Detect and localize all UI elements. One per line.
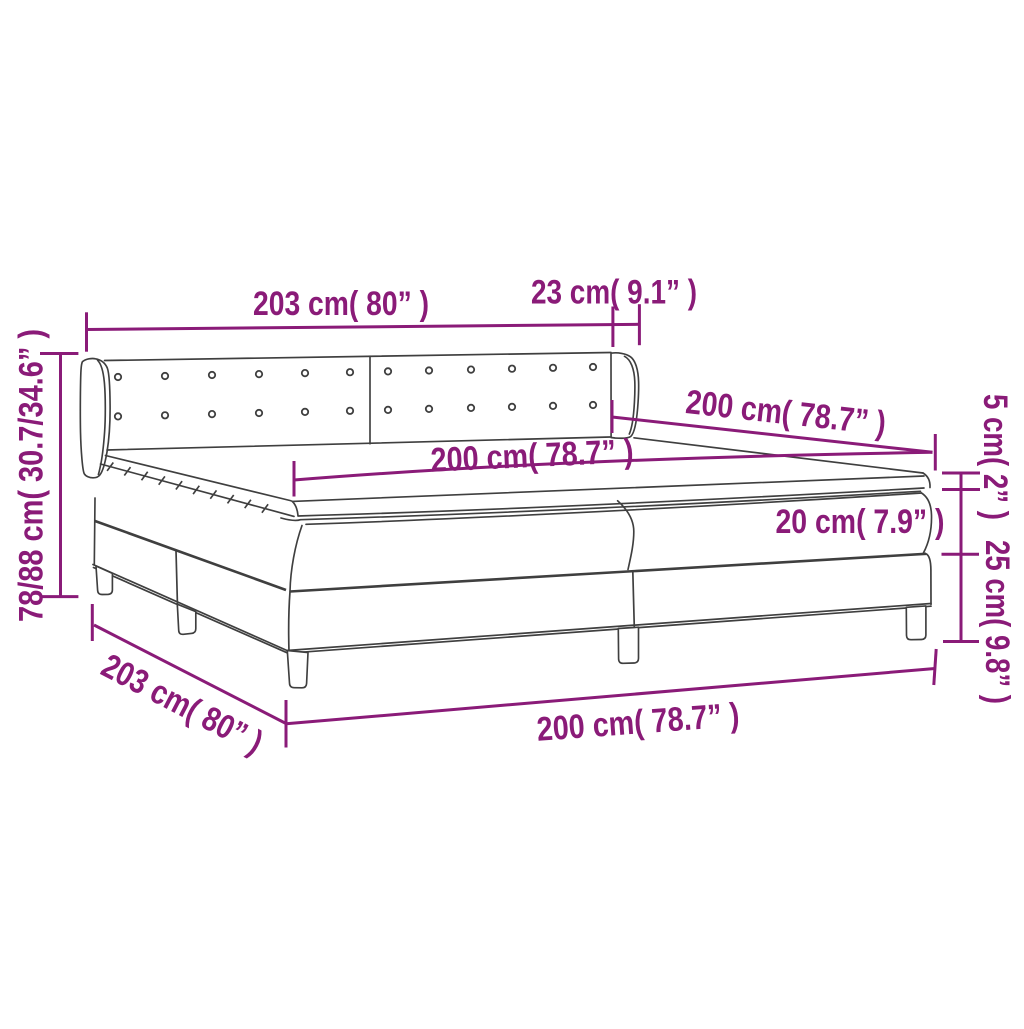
- svg-text:23 cm( 9.1” ): 23 cm( 9.1” ): [531, 274, 697, 312]
- svg-text:20 cm( 7.9” ): 20 cm( 7.9” ): [776, 503, 945, 541]
- svg-text:5 cm( 2” ): 5 cm( 2” ): [976, 394, 1014, 520]
- svg-text:203 cm( 80” ): 203 cm( 80” ): [253, 285, 429, 323]
- svg-text:78/88 cm( 30.7/34.6” ): 78/88 cm( 30.7/34.6” ): [13, 329, 51, 622]
- svg-text:25 cm( 9.8” ): 25 cm( 9.8” ): [978, 540, 1016, 704]
